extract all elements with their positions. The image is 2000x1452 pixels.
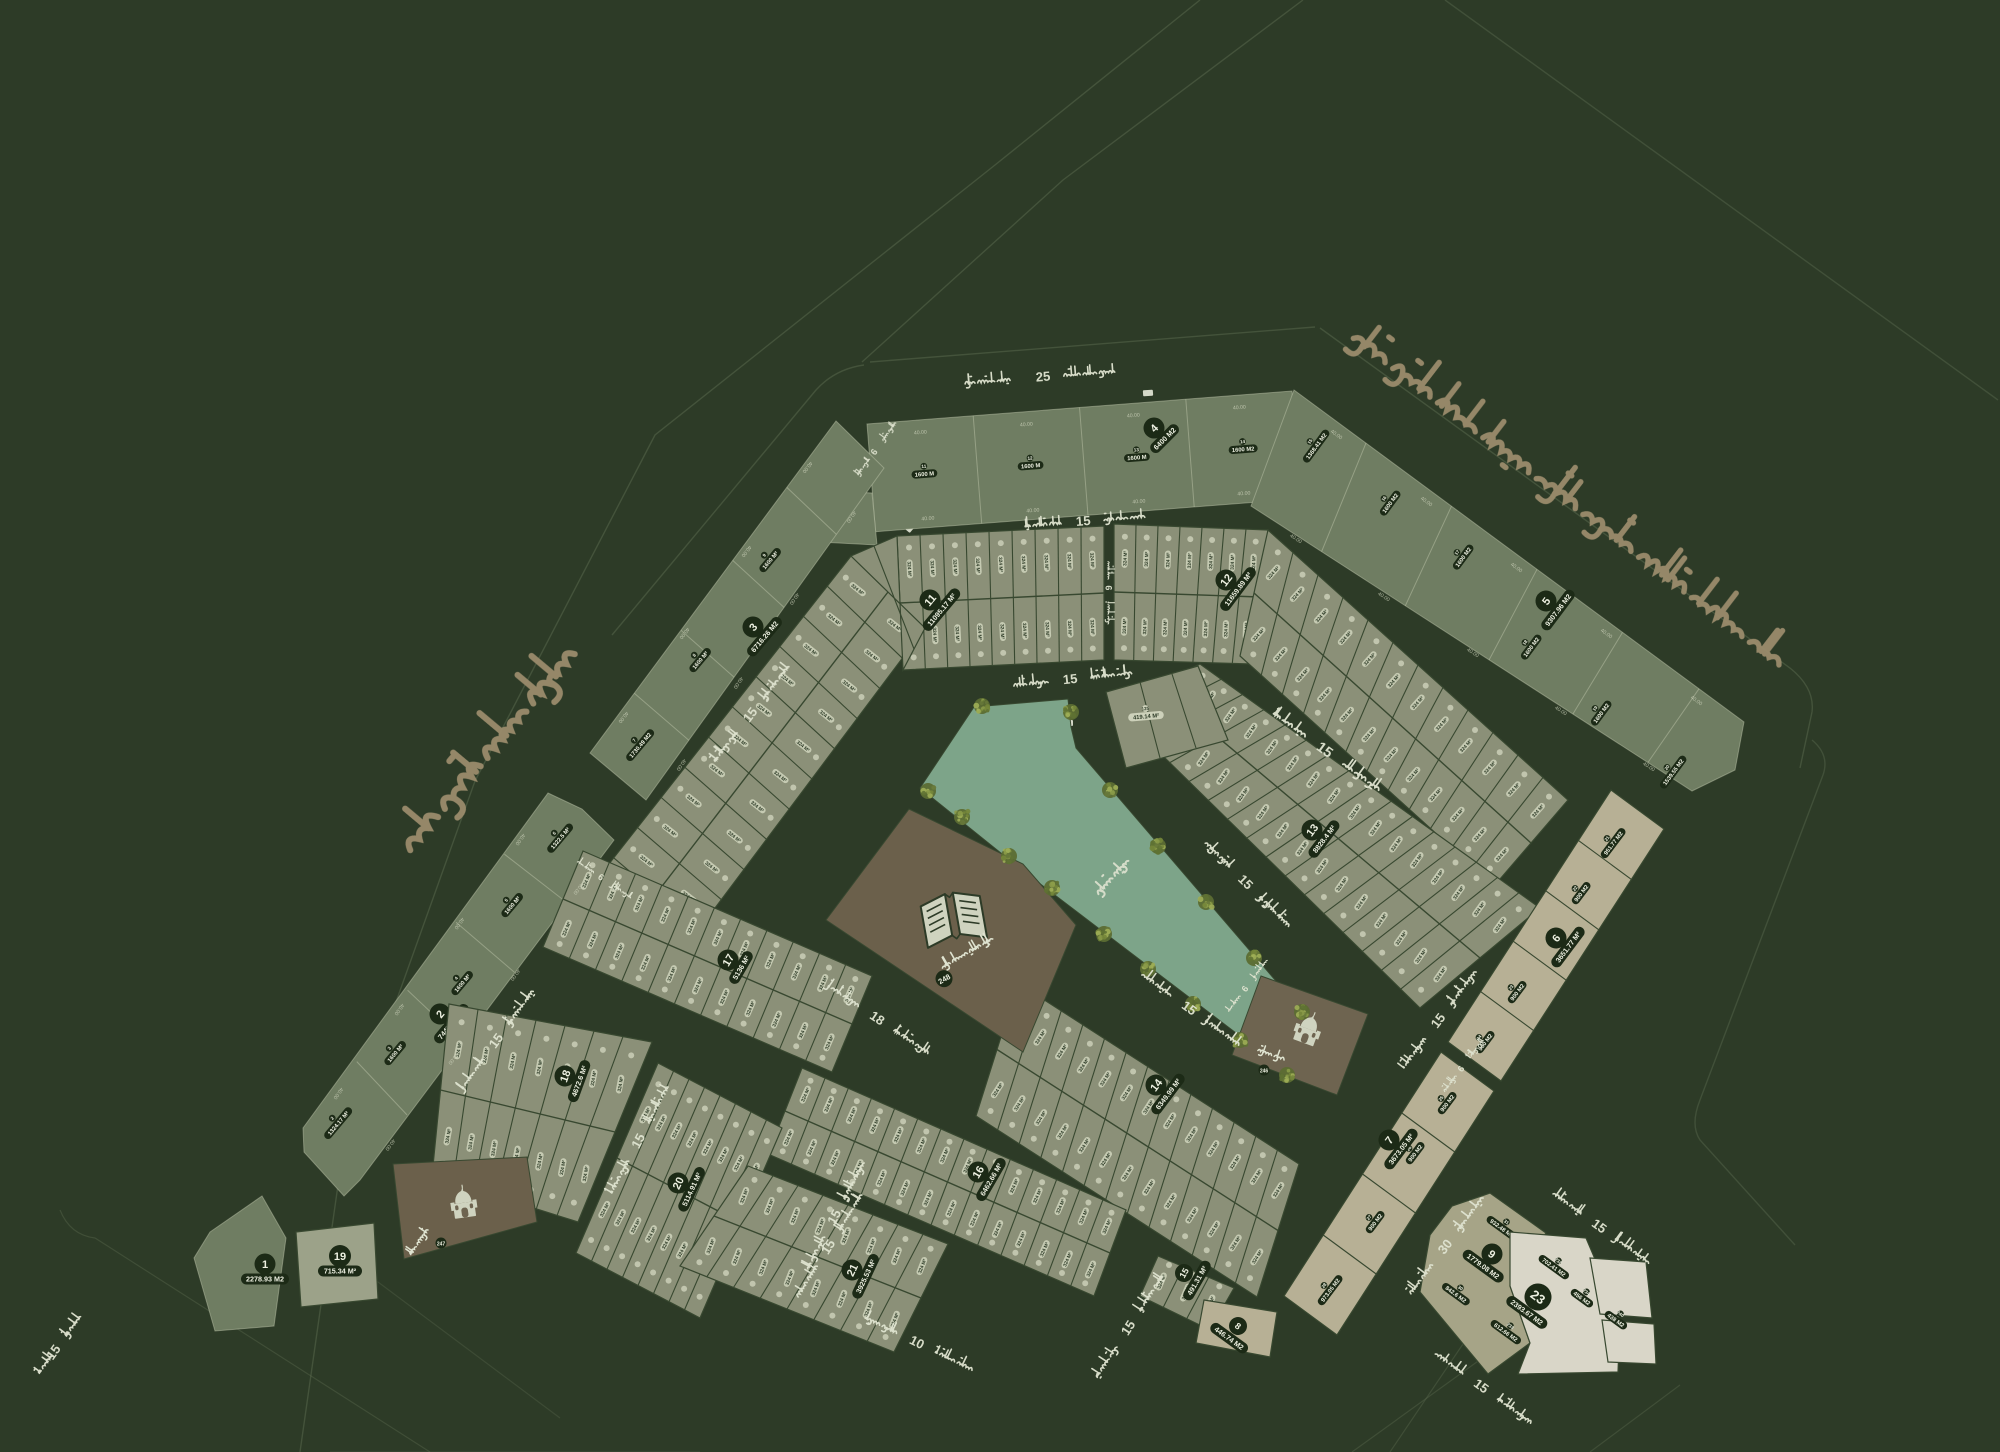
svg-text:11: 11 <box>921 464 927 469</box>
svg-text:324 M²: 324 M² <box>951 559 958 575</box>
svg-text:40.00: 40.00 <box>921 516 934 523</box>
svg-text:324 M²: 324 M² <box>1122 618 1129 634</box>
svg-text:324 M²: 324 M² <box>1122 550 1129 566</box>
svg-text:324 M²: 324 M² <box>1088 553 1095 569</box>
svg-text:125: 125 <box>1141 706 1150 712</box>
svg-text:324 M²: 324 M² <box>1162 620 1169 636</box>
svg-text:324 M²: 324 M² <box>906 561 913 577</box>
svg-text:324 M²: 324 M² <box>1142 619 1149 635</box>
svg-text:2278.93 M2: 2278.93 M2 <box>246 1275 284 1284</box>
svg-text:25: 25 <box>1035 369 1051 385</box>
svg-text:246: 246 <box>1260 1069 1269 1075</box>
svg-text:247: 247 <box>437 1242 446 1248</box>
svg-text:13: 13 <box>1134 447 1140 452</box>
svg-text:14: 14 <box>1240 439 1246 444</box>
svg-text:324 M²: 324 M² <box>976 625 983 641</box>
svg-text:324 M²: 324 M² <box>1223 622 1230 638</box>
svg-text:40.00: 40.00 <box>1020 422 1033 429</box>
svg-text:324 M²: 324 M² <box>1187 553 1194 569</box>
svg-text:324 M²: 324 M² <box>1065 554 1072 570</box>
svg-text:1: 1 <box>262 1259 268 1271</box>
svg-text:15: 15 <box>1075 513 1091 529</box>
svg-text:40.00: 40.00 <box>1132 499 1145 506</box>
svg-text:324 M²: 324 M² <box>997 557 1004 573</box>
svg-text:324 M²: 324 M² <box>1020 556 1027 572</box>
svg-text:324 M²: 324 M² <box>1203 621 1210 637</box>
svg-text:324 M²: 324 M² <box>974 558 981 574</box>
svg-text:324 M²: 324 M² <box>1183 620 1190 636</box>
svg-text:324 M²: 324 M² <box>928 560 935 576</box>
svg-text:40.00: 40.00 <box>1026 508 1039 515</box>
svg-text:19: 19 <box>334 1251 346 1263</box>
svg-text:324 M²: 324 M² <box>1144 551 1151 567</box>
svg-text:40.00: 40.00 <box>1237 491 1250 498</box>
svg-text:324 M²: 324 M² <box>1230 554 1237 570</box>
svg-text:40.00: 40.00 <box>1233 405 1246 412</box>
svg-text:6: 6 <box>1104 585 1114 590</box>
svg-text:324 M²: 324 M² <box>1066 621 1073 637</box>
svg-text:324 M²: 324 M² <box>1088 620 1095 636</box>
svg-text:324 M²: 324 M² <box>1208 554 1215 570</box>
svg-text:324 M²: 324 M² <box>1043 555 1050 571</box>
svg-text:324 M²: 324 M² <box>1165 552 1172 568</box>
svg-text:324 M²: 324 M² <box>1043 622 1050 638</box>
svg-text:324 M²: 324 M² <box>931 627 938 643</box>
svg-text:324 M²: 324 M² <box>1021 623 1028 639</box>
svg-text:15: 15 <box>1062 671 1078 687</box>
svg-text:40.00: 40.00 <box>914 430 927 437</box>
svg-text:324 M²: 324 M² <box>953 626 960 642</box>
svg-text:715.34 M²: 715.34 M² <box>324 1267 357 1276</box>
svg-text:40.00: 40.00 <box>1127 413 1140 420</box>
svg-text:12: 12 <box>1027 455 1033 460</box>
svg-text:324 M²: 324 M² <box>998 624 1005 640</box>
